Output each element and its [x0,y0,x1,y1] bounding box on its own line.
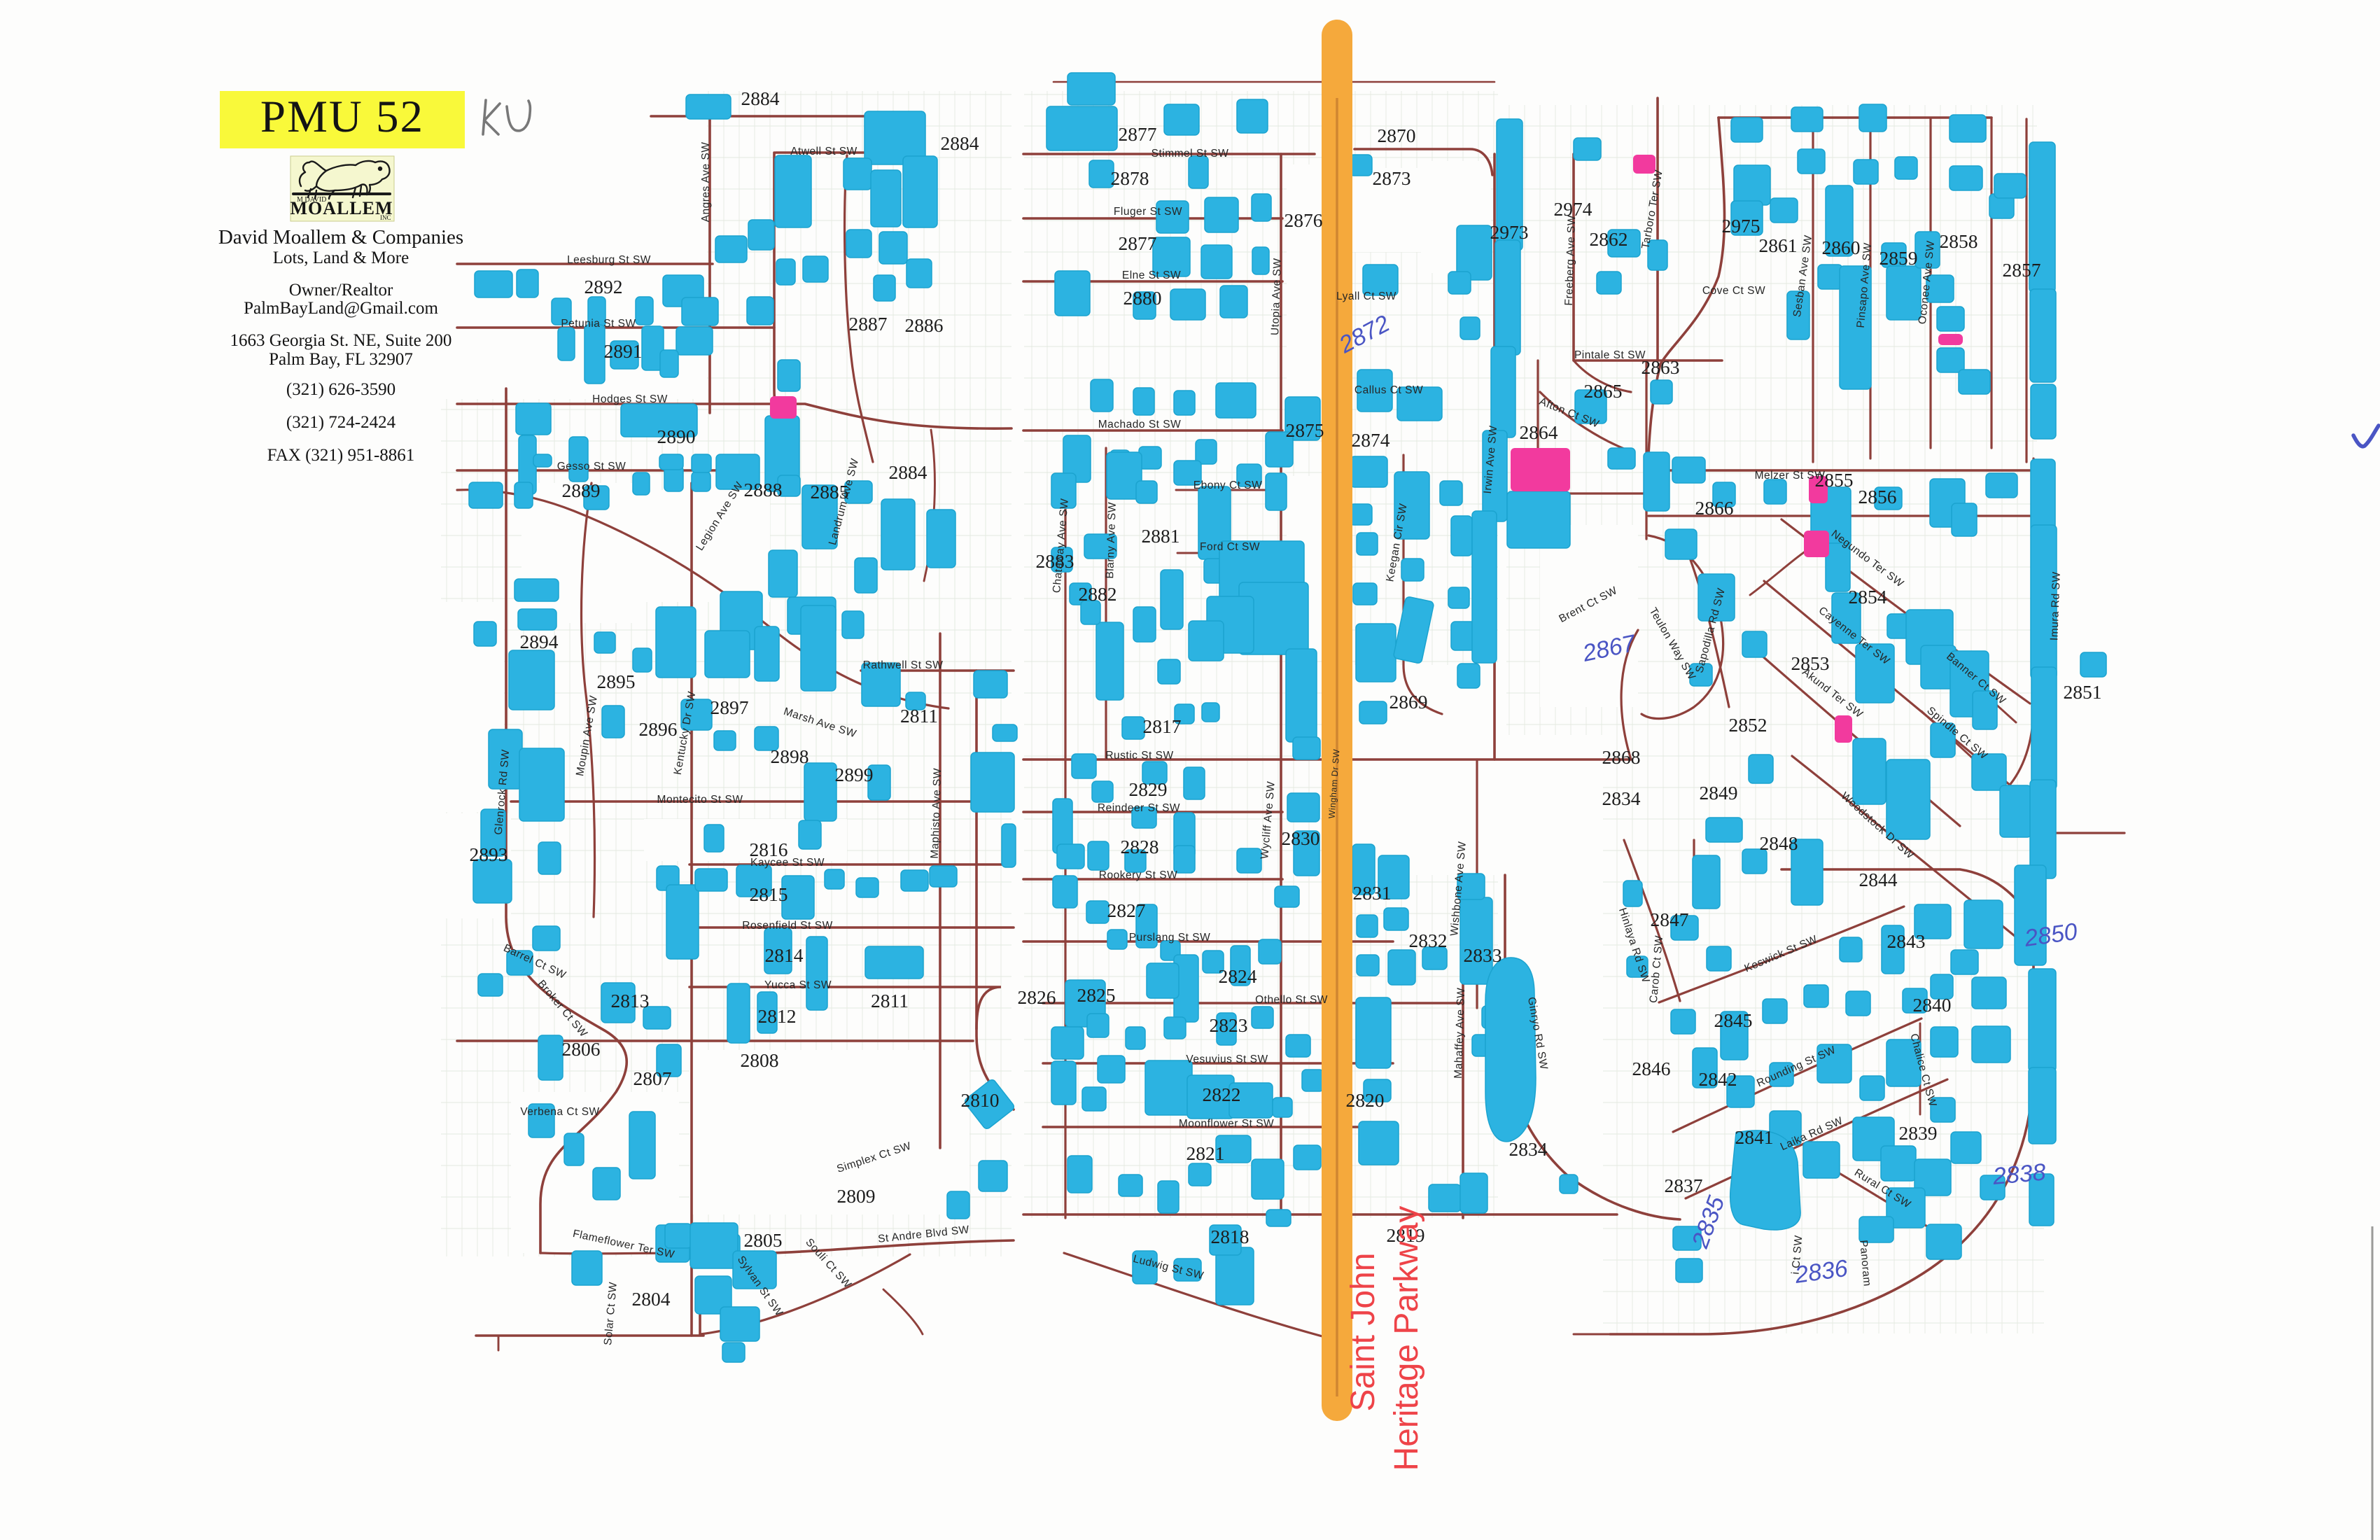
svg-text:2825: 2825 [1077,984,1116,1006]
svg-text:1663 Georgia St. NE, Suite 200: 1663 Georgia St. NE, Suite 200 [230,331,452,350]
svg-text:2873: 2873 [1373,167,1411,189]
svg-text:2805: 2805 [744,1229,783,1251]
svg-text:2841: 2841 [1735,1126,1774,1148]
svg-text:Leesburg St SW: Leesburg St SW [567,254,651,266]
svg-text:2884: 2884 [741,87,780,109]
svg-text:2866: 2866 [1695,497,1734,519]
svg-text:2877: 2877 [1119,123,1157,145]
svg-text:Cove Ct SW: Cove Ct SW [1702,285,1765,297]
svg-text:2881: 2881 [1142,525,1180,547]
svg-text:2810: 2810 [961,1089,1000,1111]
svg-text:2852: 2852 [1729,714,1767,736]
svg-text:2842: 2842 [1699,1068,1737,1090]
svg-text:2817: 2817 [1143,715,1182,737]
svg-text:Pintale St SW: Pintale St SW [1574,349,1646,361]
svg-text:2865: 2865 [1584,380,1623,402]
svg-text:Elne St SW: Elne St SW [1122,269,1181,281]
svg-text:Gesso St SW: Gesso St SW [557,461,626,472]
svg-text:2839: 2839 [1899,1122,1938,1144]
svg-text:2896: 2896 [639,718,678,740]
svg-text:David Moallem & Companies: David Moallem & Companies [218,226,463,248]
svg-text:2808: 2808 [741,1049,779,1071]
svg-text:2884: 2884 [889,461,927,483]
svg-text:2824: 2824 [1219,965,1257,987]
svg-text:2820: 2820 [1346,1089,1385,1111]
svg-text:PalmBayLand@Gmail.com: PalmBayLand@Gmail.com [244,299,438,318]
svg-text:2831: 2831 [1353,882,1392,904]
svg-text:2821: 2821 [1186,1142,1225,1164]
svg-text:2830: 2830 [1282,827,1320,849]
svg-text:2834: 2834 [1602,787,1641,809]
svg-text:2858: 2858 [1940,230,1978,252]
svg-text:Hodges St SW: Hodges St SW [592,393,668,405]
svg-text:2843: 2843 [1887,930,1926,952]
svg-text:2813: 2813 [611,990,650,1011]
svg-text:2838: 2838 [1991,1159,2047,1191]
svg-text:2833: 2833 [1464,944,1502,966]
svg-text:2869: 2869 [1389,691,1428,713]
svg-text:2823: 2823 [1210,1014,1248,1036]
svg-text:(321) 724-2424: (321) 724-2424 [286,413,396,432]
svg-text:2875: 2875 [1286,419,1324,441]
svg-text:Purslang St SW: Purslang St SW [1129,932,1210,944]
svg-text:2889: 2889 [562,479,601,501]
svg-text:2829: 2829 [1129,778,1168,800]
svg-text:2811: 2811 [871,990,909,1011]
svg-text:2893: 2893 [470,843,508,865]
svg-text:Fluger St SW: Fluger St SW [1114,206,1182,218]
svg-text:Ebony Ct SW: Ebony Ct SW [1193,479,1263,491]
svg-text:2897: 2897 [710,696,749,718]
svg-text:2894: 2894 [520,631,559,652]
svg-text:Stimmel St SW: Stimmel St SW [1151,148,1229,160]
svg-text:Lots, Land & More: Lots, Land & More [273,248,409,267]
svg-text:2826: 2826 [1018,986,1056,1008]
svg-text:2844: 2844 [1859,869,1898,890]
svg-text:2870: 2870 [1378,125,1416,146]
svg-text:Othello St SW: Othello St SW [1255,994,1328,1006]
svg-text:Petunia St SW: Petunia St SW [561,318,636,330]
svg-text:2822: 2822 [1203,1084,1241,1105]
svg-text:Saint John: Saint John [1345,1253,1382,1412]
svg-text:2845: 2845 [1714,1009,1753,1031]
svg-text:2888: 2888 [744,479,783,500]
svg-text:Heritage Parkway: Heritage Parkway [1388,1206,1425,1471]
svg-text:Atwell St SW: Atwell St SW [790,146,857,157]
svg-text:Moonflower St SW: Moonflower St SW [1179,1118,1274,1130]
svg-text:2849: 2849 [1700,782,1738,804]
svg-text:2837: 2837 [1665,1175,1703,1196]
svg-text:2857: 2857 [2003,259,2041,281]
svg-text:2880: 2880 [1123,287,1162,309]
svg-text:2847: 2847 [1651,909,1689,930]
svg-text:2811: 2811 [900,705,938,727]
svg-text:Rustic St SW: Rustic St SW [1105,750,1173,762]
svg-text:MOALLEM: MOALLEM [290,198,393,218]
svg-text:2886: 2886 [905,314,944,336]
svg-text:Vesuvius St SW: Vesuvius St SW [1186,1053,1268,1065]
svg-text:Rosenfield St SW: Rosenfield St SW [742,920,832,932]
svg-text:2878: 2878 [1111,167,1149,189]
svg-text:2806: 2806 [562,1038,601,1060]
svg-text:Angres Ave SW: Angres Ave SW [700,142,712,223]
svg-text:Imura Rd SW: Imura Rd SW [2048,571,2062,640]
svg-text:2898: 2898 [771,745,809,767]
svg-text:2887: 2887 [849,313,888,335]
svg-text:2818: 2818 [1211,1226,1249,1247]
svg-text:2874: 2874 [1352,429,1390,451]
svg-text:Lyall Ct SW: Lyall Ct SW [1336,290,1396,302]
svg-text:2890: 2890 [657,426,696,447]
svg-text:2891: 2891 [604,340,643,362]
svg-text:2840: 2840 [1913,994,1952,1016]
svg-text:2862: 2862 [1590,228,1628,250]
svg-text:2868: 2868 [1602,746,1641,768]
svg-text:Verbena Ct SW: Verbena Ct SW [520,1106,599,1118]
svg-text:Ford Ct SW: Ford Ct SW [1200,541,1260,553]
svg-text:2863: 2863 [1641,356,1680,378]
svg-text:INC: INC [380,214,391,221]
svg-text:FAX (321) 951-8861: FAX (321) 951-8861 [267,446,415,465]
svg-text:Machado St SW: Machado St SW [1098,419,1182,430]
svg-text:Melzer St SW: Melzer St SW [1755,470,1826,482]
svg-text:2861: 2861 [1759,234,1798,256]
svg-text:2848: 2848 [1760,832,1798,854]
svg-text:2882: 2882 [1079,583,1117,605]
svg-text:2884: 2884 [941,132,979,154]
svg-text:2815: 2815 [750,883,788,905]
svg-text:2892: 2892 [584,276,623,297]
svg-text:2846: 2846 [1632,1058,1671,1079]
svg-text:PMU 52: PMU 52 [260,92,424,142]
svg-text:2814: 2814 [765,944,804,966]
svg-text:2856: 2856 [1858,486,1897,507]
svg-text:2895: 2895 [597,671,636,692]
svg-text:(321) 626-3590: (321) 626-3590 [286,380,395,399]
svg-text:2973: 2973 [1490,221,1529,243]
svg-text:Kaycee St SW: Kaycee St SW [750,857,825,869]
svg-text:2860: 2860 [1822,237,1861,258]
svg-text:2828: 2828 [1121,836,1159,857]
svg-text:2899: 2899 [835,764,874,785]
svg-text:2827: 2827 [1107,899,1146,921]
svg-text:Owner/Realtor: Owner/Realtor [289,281,393,300]
svg-text:Rookery St SW: Rookery St SW [1099,869,1177,881]
svg-text:2864: 2864 [1520,421,1558,443]
svg-text:2975: 2975 [1722,215,1760,237]
svg-text:Palm Bay, FL 32907: Palm Bay, FL 32907 [269,350,413,369]
svg-text:2807: 2807 [633,1067,672,1089]
svg-text:Yucca St SW: Yucca St SW [764,979,832,991]
svg-text:Rathwell St SW: Rathwell St SW [863,659,944,671]
svg-text:2876: 2876 [1284,209,1323,231]
svg-text:2832: 2832 [1409,930,1448,951]
svg-text:2812: 2812 [758,1005,797,1027]
svg-text:2804: 2804 [632,1288,671,1310]
svg-text:Reindeer St SW: Reindeer St SW [1098,802,1180,814]
svg-text:2859: 2859 [1879,247,1918,269]
svg-text:Callus Ct SW: Callus Ct SW [1354,384,1423,396]
svg-text:Montecito St SW: Montecito St SW [657,794,743,806]
svg-text:2834: 2834 [1509,1138,1548,1160]
svg-text:2809: 2809 [837,1185,876,1207]
svg-text:2851: 2851 [2064,681,2102,703]
svg-text:2854: 2854 [1849,586,1887,608]
svg-text:2877: 2877 [1119,232,1157,254]
